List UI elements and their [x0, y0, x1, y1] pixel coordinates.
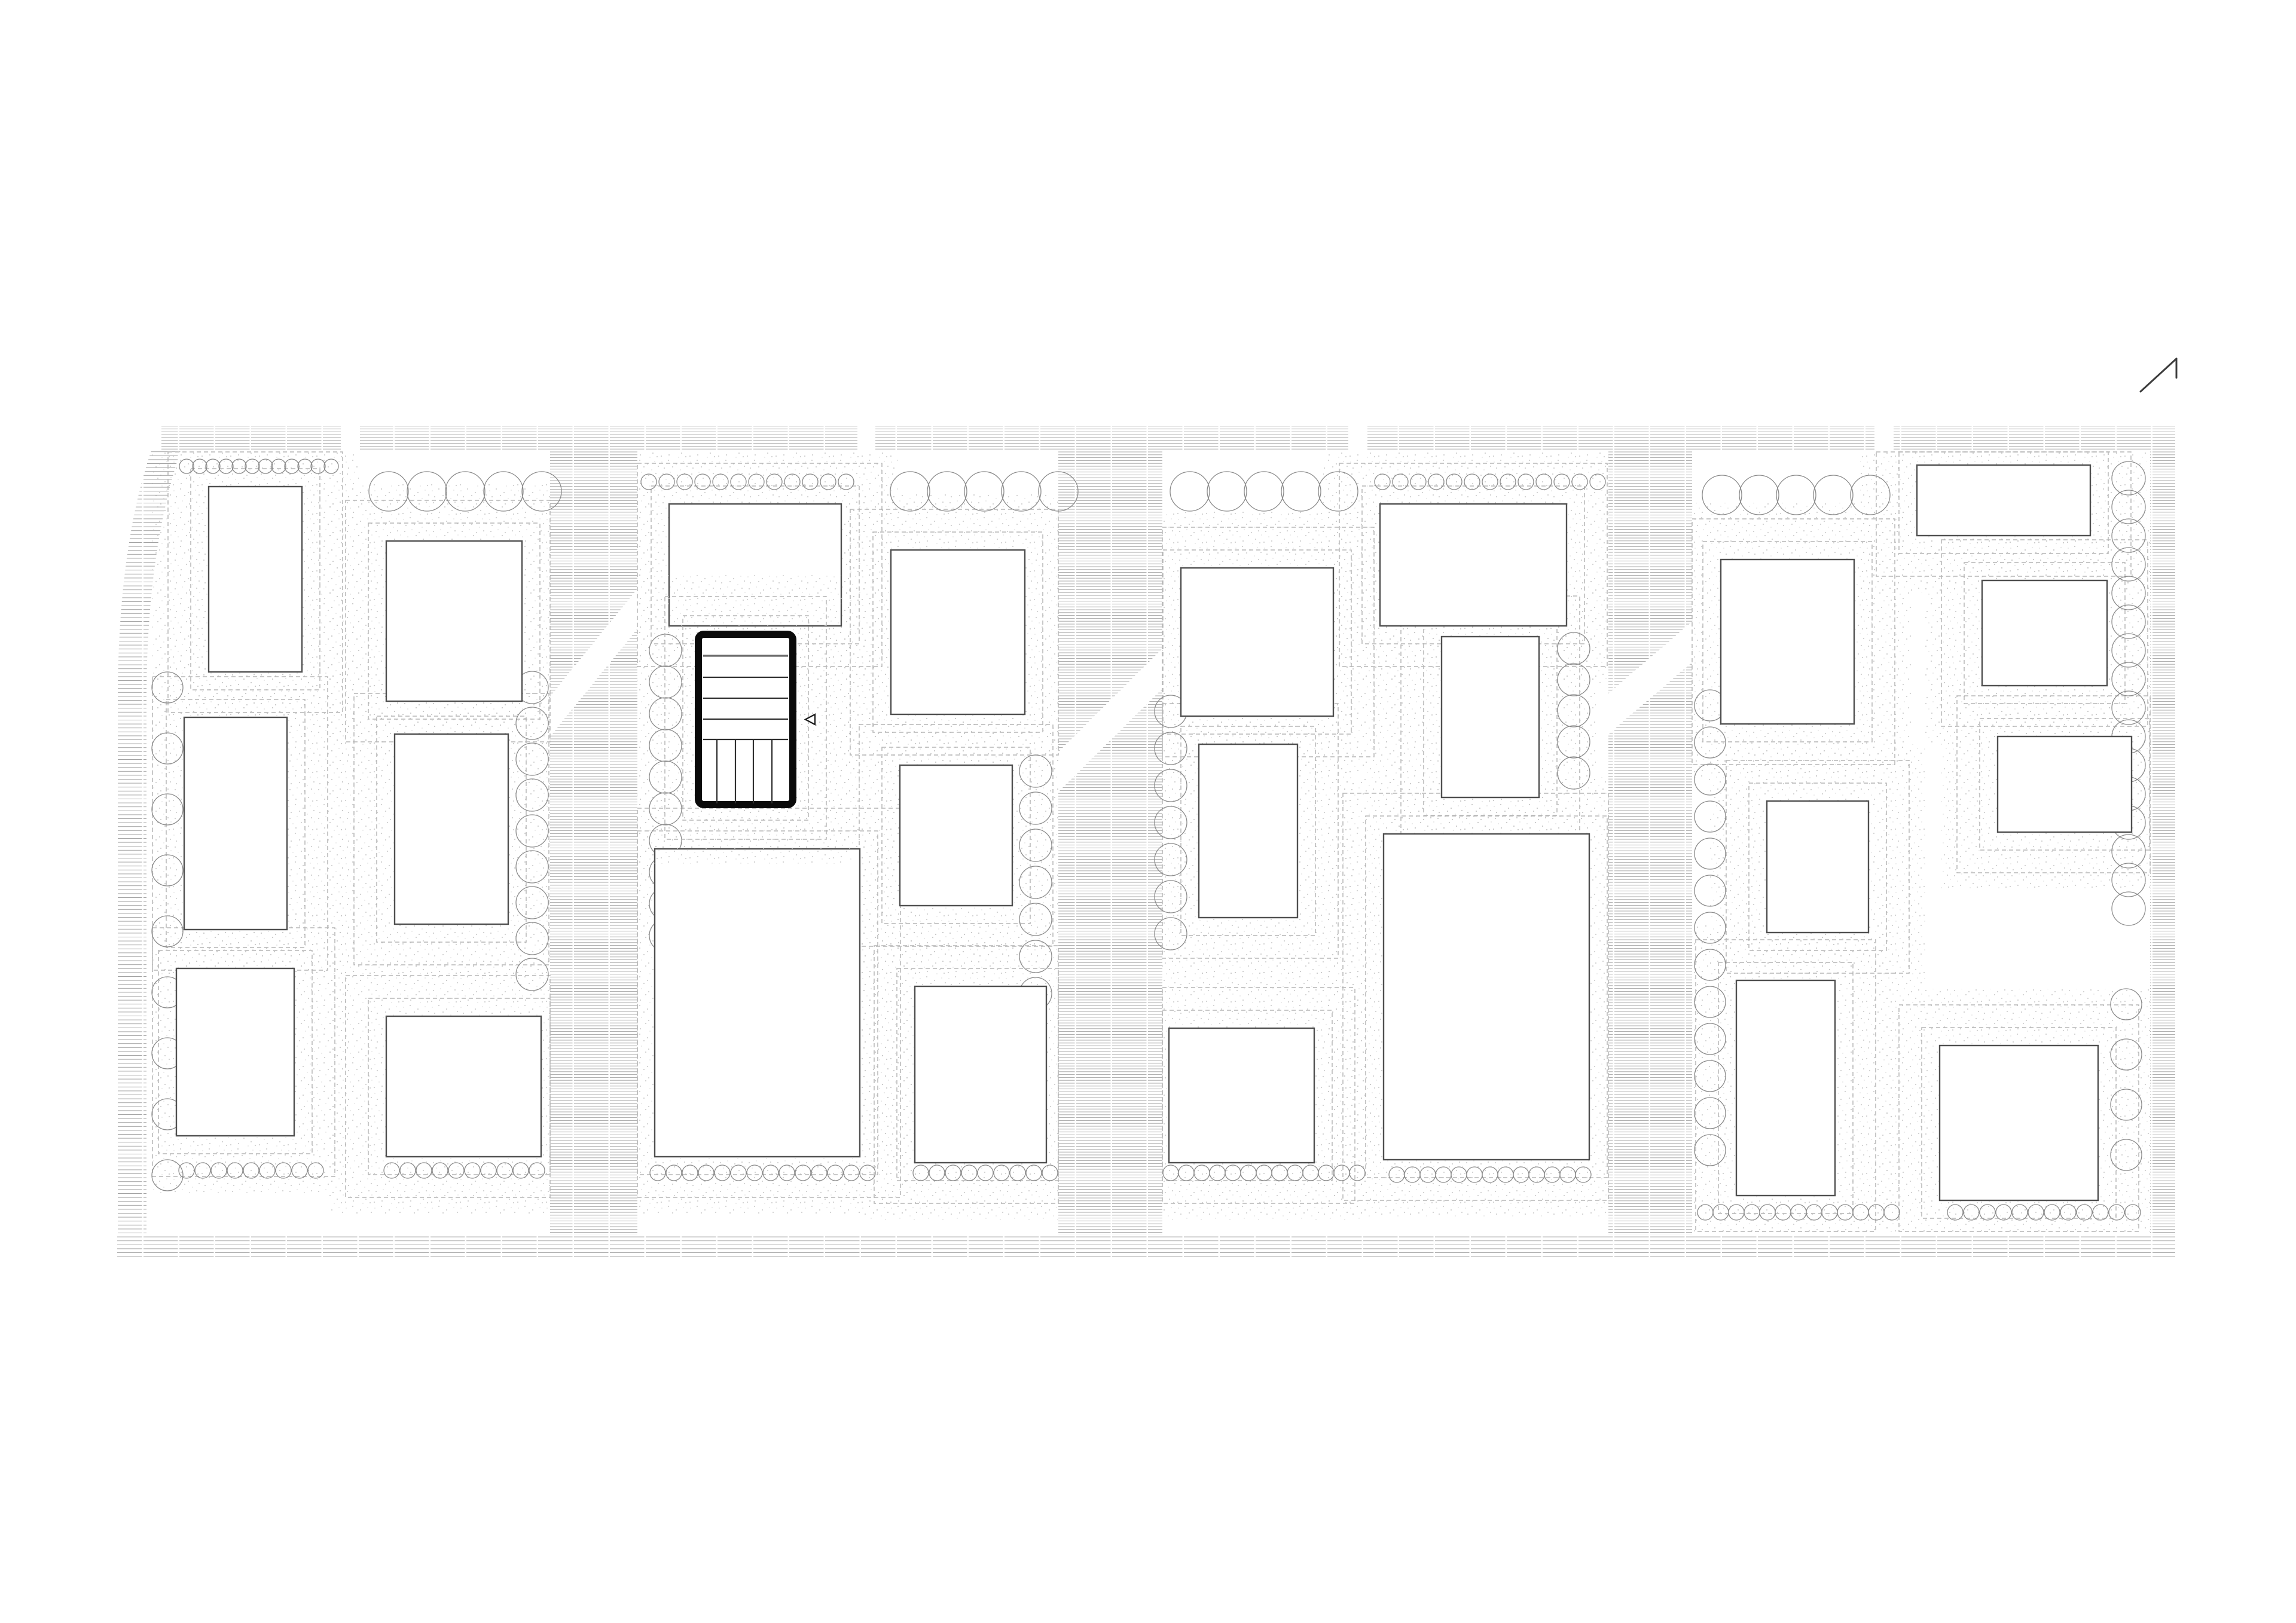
- strip-2-lower: [1058, 689, 1162, 1235]
- building-8: [655, 849, 860, 1157]
- building-12: [1181, 568, 1333, 716]
- building-5: [395, 734, 508, 924]
- building-20: [1736, 980, 1835, 1196]
- building-2: [184, 717, 287, 930]
- top-road-segment-1: [161, 426, 341, 451]
- strip-3-upper: [1608, 451, 1692, 693]
- top-road-segment-4: [1367, 426, 1874, 451]
- building-4: [386, 541, 522, 701]
- site-plan-svg: [0, 0, 2296, 1623]
- tree-icon: [1281, 472, 1321, 511]
- building-14: [1169, 1028, 1314, 1163]
- site-plan-canvas: [0, 0, 2296, 1623]
- tree-icon: [1244, 472, 1284, 511]
- building-9: [891, 550, 1025, 714]
- building-16: [1442, 637, 1539, 797]
- building-11: [915, 986, 1046, 1163]
- building-3: [176, 968, 294, 1136]
- strip-1-lower: [550, 629, 637, 1235]
- building-22: [1982, 580, 2107, 686]
- building-10: [900, 765, 1012, 906]
- building-18: [1721, 560, 1854, 724]
- north-arrow-icon: [2141, 359, 2176, 392]
- tree-icon: [1207, 472, 1247, 511]
- building-19: [1767, 801, 1868, 933]
- building-13: [1199, 744, 1297, 918]
- building-6: [386, 1016, 541, 1157]
- building-15: [1380, 504, 1567, 626]
- strip-3-lower: [1608, 662, 1692, 1235]
- top-road-segment-5: [1894, 426, 2175, 451]
- top-road-segment-2: [360, 426, 857, 451]
- bottom-road: [117, 1235, 2175, 1258]
- building-23: [1998, 736, 2132, 832]
- right-border-road: [2150, 451, 2175, 1235]
- building-24: [1940, 1046, 2098, 1200]
- selected-unit-plan[interactable]: [638, 575, 853, 864]
- building-1: [209, 487, 302, 672]
- top-road-segment-3: [875, 426, 1348, 451]
- tree-icon: [1170, 472, 1210, 511]
- building-21: [1917, 465, 2090, 536]
- building-17: [1384, 834, 1589, 1160]
